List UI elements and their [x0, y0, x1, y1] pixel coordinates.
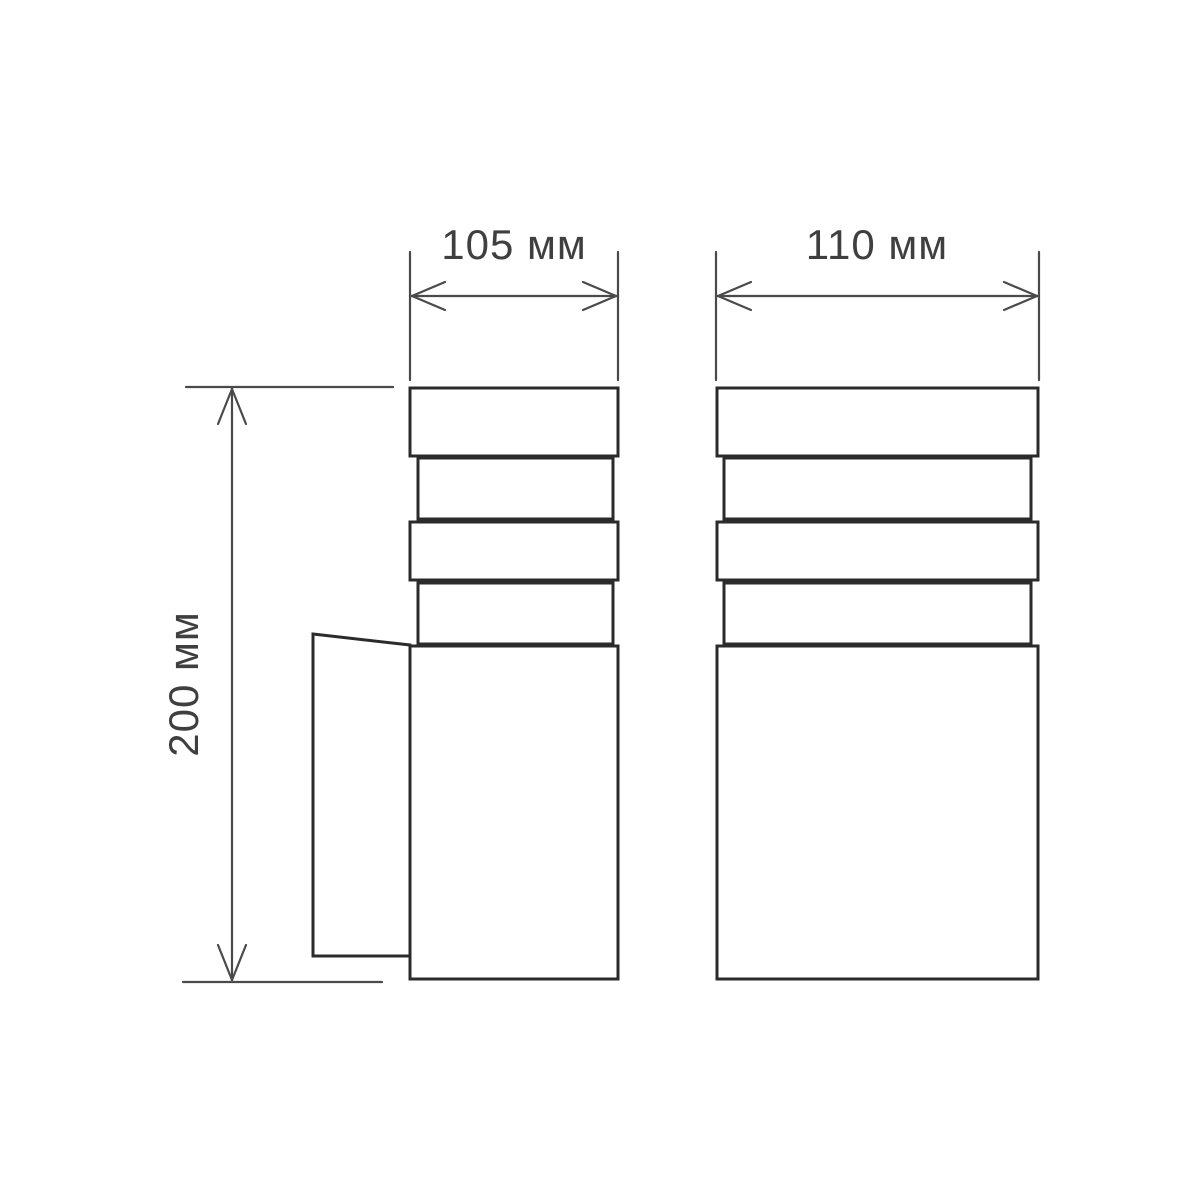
side-top-cap [717, 388, 1038, 456]
wall-bracket [313, 634, 410, 956]
extension-lines [410, 252, 618, 380]
front-louver-3 [418, 583, 613, 644]
front-louver-2 [410, 522, 618, 580]
side-louver-3 [724, 583, 1031, 644]
dimension-label-side-width: 110 мм [806, 221, 948, 268]
side-body [717, 646, 1038, 979]
extension-lines [716, 252, 1039, 380]
dimension-front-width: 105 мм [410, 221, 618, 380]
lamp-dimension-drawing: 105 мм 110 мм 200 мм [0, 0, 1200, 1200]
dimension-label-front-width: 105 мм [441, 221, 587, 268]
dimension-side-width: 110 мм [716, 221, 1039, 380]
dimension-label-height: 200 мм [160, 611, 207, 757]
side-view [717, 388, 1038, 979]
dimension-height: 200 мм [160, 387, 393, 982]
drawing-canvas: 105 мм 110 мм 200 мм [0, 0, 1200, 1200]
side-louver-2 [717, 522, 1038, 580]
front-body [410, 646, 618, 979]
front-view [313, 388, 618, 979]
front-louver-1 [418, 458, 613, 519]
front-top-cap [410, 388, 618, 456]
side-louver-1 [724, 458, 1031, 519]
